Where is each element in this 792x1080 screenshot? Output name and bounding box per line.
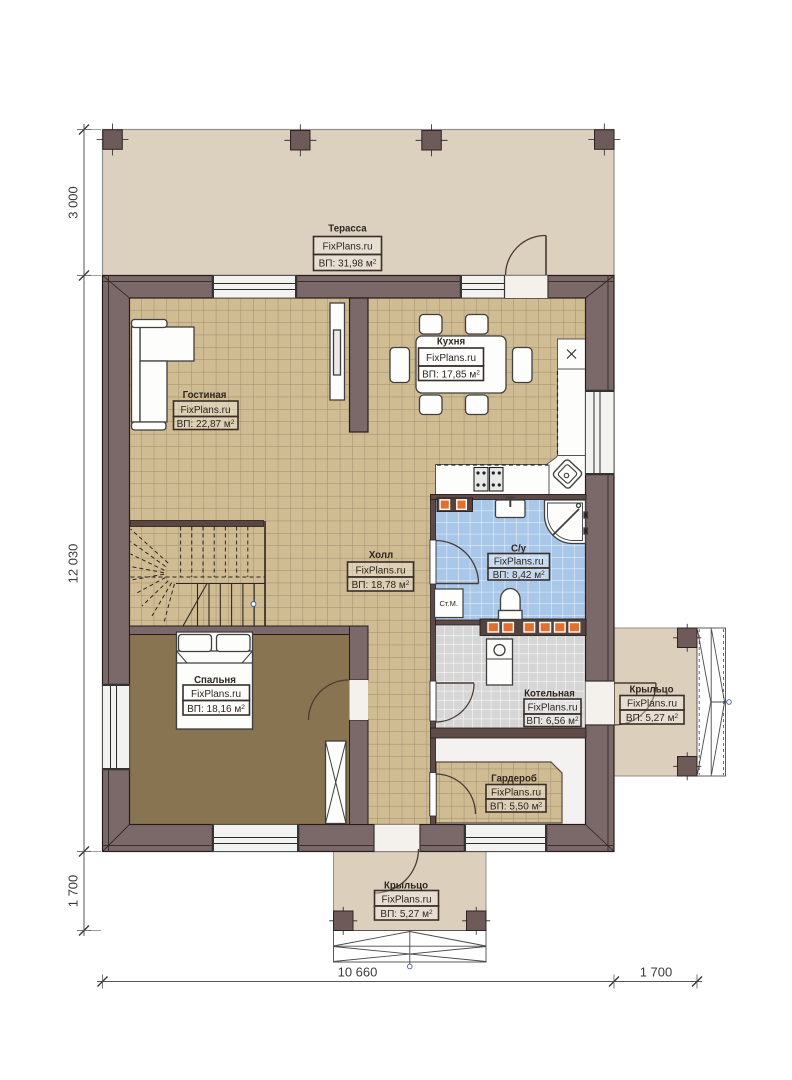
svg-text:Котельная: Котельная [524,689,575,700]
svg-text:Терасса: Терасса [328,224,367,235]
svg-text:1 700: 1 700 [640,965,673,980]
svg-text:1 700: 1 700 [66,875,81,908]
svg-text:FixPlans.ru: FixPlans.ru [491,788,541,799]
svg-text:12 030: 12 030 [66,544,81,584]
svg-text:FixPlans.ru: FixPlans.ru [627,699,677,710]
svg-text:ВП: 31,98 м2: ВП: 31,98 м2 [319,259,377,270]
svg-text:Гостиная: Гостиная [183,390,227,401]
svg-text:ВП: 17,85 м2: ВП: 17,85 м2 [422,370,480,381]
svg-text:FixPlans.ru: FixPlans.ru [381,895,431,906]
svg-text:Холл: Холл [369,550,393,561]
svg-text:ВП: 18,16 м2: ВП: 18,16 м2 [187,704,245,715]
svg-text:10 660: 10 660 [338,965,378,980]
svg-text:ВП: 6,56 м2: ВП: 6,56 м2 [526,716,579,727]
svg-text:ВП: 5,27 м2: ВП: 5,27 м2 [380,909,433,920]
svg-text:FixPlans.ru: FixPlans.ru [355,566,405,577]
svg-text:FixPlans.ru: FixPlans.ru [322,242,372,253]
svg-text:FixPlans.ru: FixPlans.ru [180,405,230,416]
svg-text:Ст.М.: Ст.М. [439,599,457,608]
svg-text:ВП: 5,50 м2: ВП: 5,50 м2 [490,802,543,813]
svg-text:Крыльцо: Крыльцо [629,685,673,696]
svg-text:Гардероб: Гардероб [491,774,537,785]
svg-text:ВП: 22,87 м2: ВП: 22,87 м2 [177,419,235,430]
svg-text:Кухня: Кухня [437,337,465,348]
svg-text:FixPlans.ru: FixPlans.ru [527,703,577,714]
svg-text:FixPlans.ru: FixPlans.ru [191,689,241,700]
svg-text:FixPlans.ru: FixPlans.ru [494,557,544,568]
svg-text:ВП: 8,42 м2: ВП: 8,42 м2 [493,570,546,581]
svg-text:FixPlans.ru: FixPlans.ru [426,353,476,364]
svg-text:ВП: 18,78 м2: ВП: 18,78 м2 [352,580,410,591]
svg-text:3 000: 3 000 [66,186,81,219]
svg-text:ВП: 5,27 м2: ВП: 5,27 м2 [626,713,679,724]
